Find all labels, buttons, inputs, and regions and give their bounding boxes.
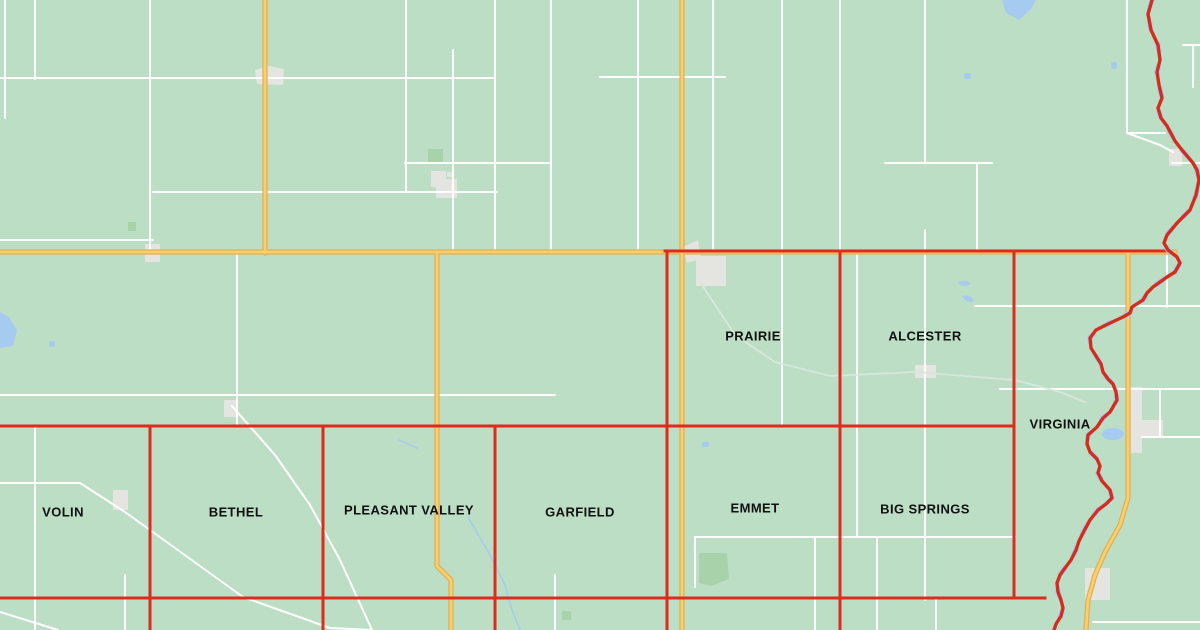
- map-viewport[interactable]: PRAIRIE ALCESTER VIRGINIA VOLIN BETHEL P…: [0, 0, 1200, 630]
- township-label-bethel: BETHEL: [209, 505, 263, 520]
- water-layer: [0, 0, 1124, 447]
- township-label-virginia: VIRGINIA: [1030, 417, 1091, 432]
- township-label-pleasant-valley: PLEASANT VALLEY: [344, 503, 474, 518]
- urban-area-layer: [113, 66, 1182, 600]
- township-label-prairie: PRAIRIE: [725, 329, 781, 344]
- highway-layer: [0, 0, 1175, 630]
- township-label-emmet: EMMET: [731, 501, 780, 516]
- township-boundary-layer: [0, 251, 1168, 630]
- township-label-big-springs: BIG SPRINGS: [880, 502, 970, 517]
- township-label-garfield: GARFIELD: [545, 505, 615, 520]
- map-canvas: [0, 0, 1200, 630]
- local-road-layer: [0, 0, 1200, 630]
- township-label-volin: VOLIN: [42, 505, 84, 520]
- township-label-alcester: ALCESTER: [888, 329, 961, 344]
- stream-layer: [399, 440, 520, 630]
